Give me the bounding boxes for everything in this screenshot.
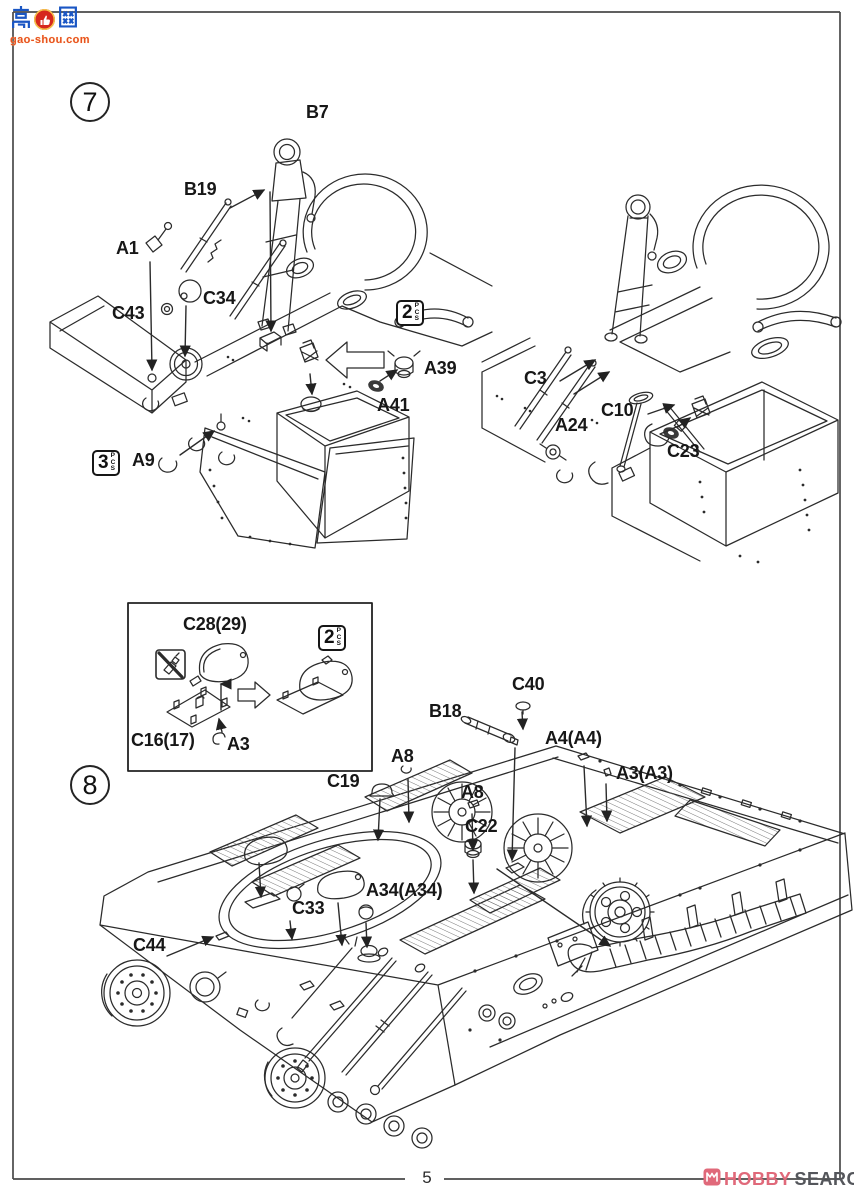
watermark-logo: gao-shou.com: [10, 6, 90, 46]
part-label-b19: B19: [184, 180, 216, 199]
road-wheel-large: [102, 960, 170, 1026]
step-number-7: 7: [70, 82, 110, 122]
diagram-art: [0, 0, 854, 1200]
watermark-domain: gao-shou.com: [10, 34, 90, 46]
part-label-c33: C33: [292, 899, 324, 918]
pcs-count: 3: [98, 453, 109, 472]
part-label-a4a4: A4(A4): [545, 729, 602, 748]
hobby-search-icon: [703, 1168, 721, 1191]
part-label-a41: A41: [377, 396, 409, 415]
pcs-count: 2: [402, 303, 413, 322]
pcs-unit: PCS: [111, 453, 116, 473]
search-wordmark: SEARCH: [795, 1169, 854, 1190]
part-label-c19: C19: [327, 772, 359, 791]
road-wheel-large-2: [264, 1048, 325, 1108]
step-number-8: 8: [70, 765, 110, 805]
part-label-c3: C3: [524, 369, 547, 388]
part-label-a8: A8: [461, 783, 484, 802]
part-label-a39: A39: [424, 359, 456, 378]
part-label-c10: C10: [601, 401, 633, 420]
step-8-label: 8: [82, 770, 97, 801]
part-label-c34: C34: [203, 289, 235, 308]
page-number: 5: [410, 1168, 444, 1188]
no-glue-icon: [156, 650, 185, 679]
step8-main-diagram: [100, 702, 852, 1148]
part-label-c1617: C16(17): [131, 731, 195, 750]
part-label-c23: C23: [667, 442, 699, 461]
page-frame: [13, 12, 840, 1179]
part-label-c22: C22: [465, 817, 497, 836]
step7-left-diagram: [50, 139, 492, 548]
part-label-c43: C43: [112, 304, 144, 323]
watermark-cn-glyph-gao: [10, 6, 32, 33]
watermark-cn-glyph-wang: [57, 6, 79, 33]
part-label-a3a3: A3(A3): [616, 764, 673, 783]
part-label-b18: B18: [429, 702, 461, 721]
part-label-c2829: C28(29): [183, 615, 247, 634]
hollow-right-arrow: [238, 682, 270, 708]
step-7-label: 7: [82, 87, 97, 118]
part-label-b7: B7: [306, 103, 329, 122]
hobby-wordmark: HOBBY: [724, 1169, 792, 1190]
hollow-left-arrow: [326, 342, 384, 378]
pcs-badge-2: 2PCS: [318, 625, 346, 651]
part-label-a3: A3: [227, 735, 250, 754]
pioneer-tools: [190, 937, 466, 1095]
part-label-c44: C44: [133, 936, 165, 955]
part-label-c40: C40: [512, 675, 544, 694]
pcs-unit: PCS: [415, 303, 420, 323]
instruction-page: { "watermark": { "cn_text": "高网", "thumb…: [0, 0, 854, 1200]
pcs-count: 2: [324, 628, 335, 647]
thumb-up-icon: [34, 9, 55, 30]
part-label-a34a34: A34(A34): [366, 881, 442, 900]
part-label-a9: A9: [132, 451, 155, 470]
pcs-badge-3: 3PCS: [92, 450, 120, 476]
pcs-badge-2: 2PCS: [396, 300, 424, 326]
part-label-a1: A1: [116, 239, 139, 258]
part-label-a8: A8: [391, 747, 414, 766]
part-label-a24: A24: [555, 416, 587, 435]
pcs-unit: PCS: [337, 628, 342, 648]
hobby-search-logo: HOBBY SEARCH: [703, 1168, 854, 1191]
